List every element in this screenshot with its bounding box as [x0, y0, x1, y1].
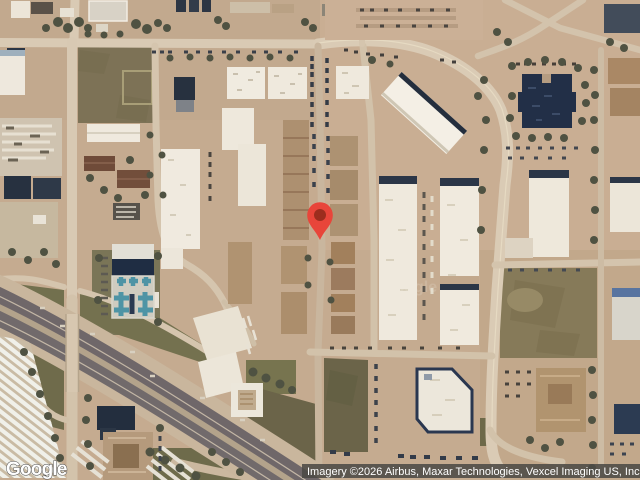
svg-text:Google: Google [6, 459, 67, 480]
svg-text:Google: Google [382, 279, 437, 296]
svg-text:Imagery ©2026 Airbus, Maxar Te: Imagery ©2026 Airbus, Maxar Technologies… [307, 466, 640, 478]
